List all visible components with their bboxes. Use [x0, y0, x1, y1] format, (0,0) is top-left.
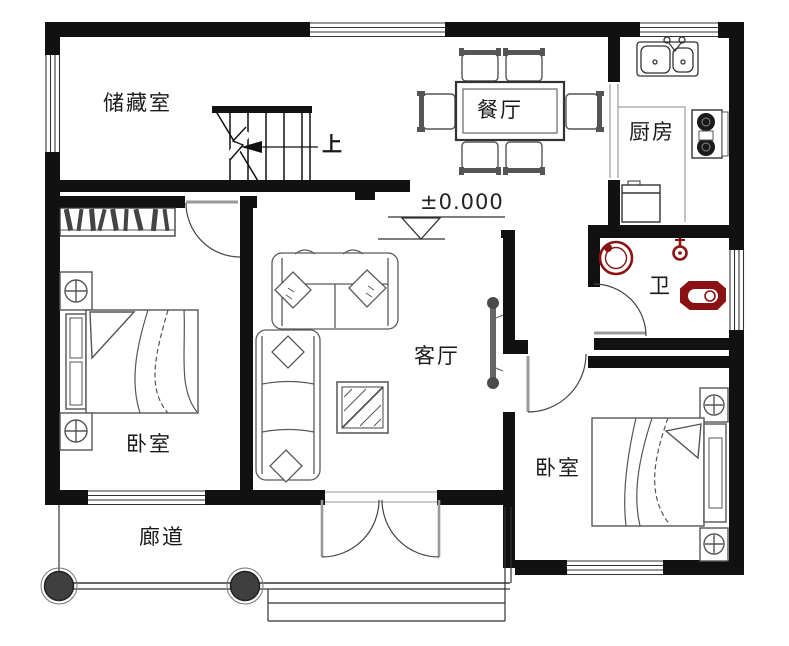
nightstand	[60, 272, 92, 310]
window-bottom-bedroom-right	[567, 561, 663, 575]
entry-steps	[268, 589, 505, 621]
kitchen-stove	[692, 110, 728, 158]
nightstand	[60, 413, 92, 450]
nightstand	[700, 528, 728, 561]
doors-layer	[186, 84, 646, 557]
door-bedroom-right	[528, 354, 586, 412]
room-label-bedroom-right: 卧室	[535, 458, 581, 479]
porch-columns	[41, 568, 263, 604]
stairs	[212, 106, 318, 181]
room-label-bedroom-left: 卧室	[126, 434, 172, 455]
window-left-storage	[46, 55, 60, 152]
door-entry-double	[322, 492, 439, 557]
sofa-set	[256, 250, 398, 482]
window-top-kitchen	[640, 23, 718, 37]
stairs-up-label: 上	[322, 134, 344, 154]
shower-head	[674, 238, 687, 260]
toilet	[681, 282, 725, 309]
room-label-corridor: 廊道	[139, 527, 185, 548]
floor-plan: 储藏室 餐厅 厨房 卫 客厅 卧室 卧室 廊道 上 ±0.000	[0, 0, 789, 646]
stairs-up-arrow	[241, 141, 318, 153]
window-top-dining	[310, 23, 445, 37]
column	[231, 572, 260, 601]
opening-kitchen	[610, 84, 618, 178]
window-bottom-bedroom-left	[88, 491, 205, 505]
room-label-storage: 储藏室	[103, 93, 172, 114]
room-label-dining: 餐厅	[477, 100, 523, 121]
floor-elevation-label: ±0.000	[420, 192, 504, 213]
bed-right	[592, 388, 728, 561]
room-label-living: 客厅	[414, 346, 460, 367]
window-right-bathroom	[730, 250, 744, 330]
bookshelf	[60, 208, 175, 236]
nightstand	[700, 388, 728, 422]
kitchen-sink	[637, 37, 698, 76]
room-label-bathroom: 卫	[649, 276, 672, 297]
porch	[45, 505, 511, 621]
kitchen-fridge	[622, 181, 660, 222]
sofa-loveseat	[272, 250, 398, 329]
coffee-table	[337, 382, 388, 433]
elevation-marker	[378, 217, 505, 239]
column	[45, 572, 74, 601]
tv-unit	[487, 297, 503, 389]
bed-left	[60, 272, 198, 450]
bathroom-sink	[600, 242, 632, 274]
door-bathroom	[594, 284, 646, 336]
sofa-long	[256, 330, 320, 482]
room-label-kitchen: 厨房	[629, 122, 675, 143]
door-bedroom-left	[186, 202, 240, 257]
